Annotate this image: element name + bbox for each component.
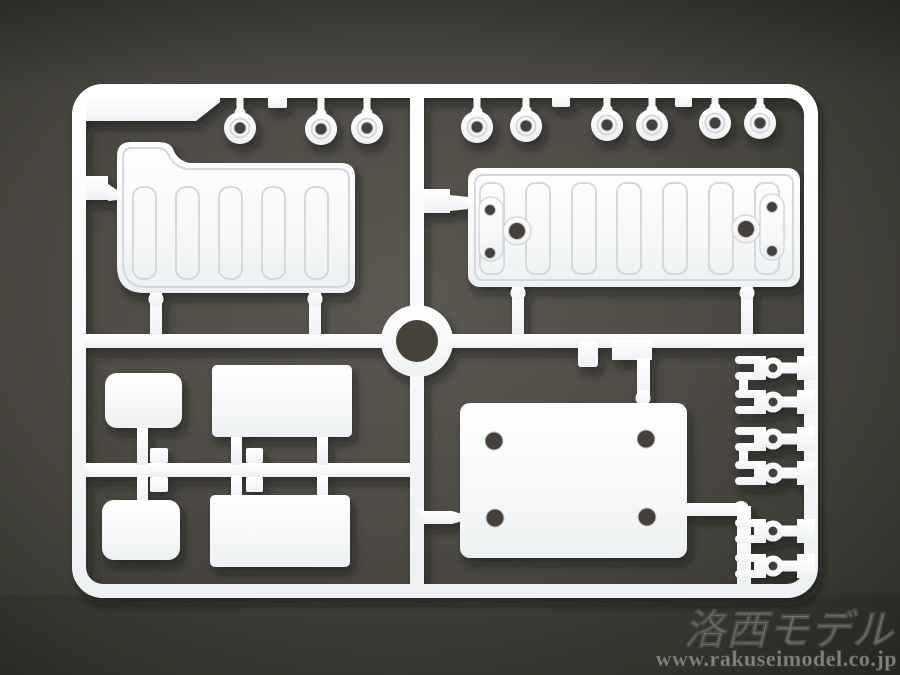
- sprue-photo: 洛西モデル www.rakuseimodel.co.jp: [0, 0, 900, 675]
- mount-plate-right-stub: [683, 503, 739, 516]
- part-rect-plate-bottom: [210, 495, 350, 567]
- cab-panel-body: [117, 142, 355, 293]
- left-rail-stub: [86, 176, 108, 200]
- runner-label-tab: [86, 96, 220, 121]
- chassis-arm: [424, 189, 450, 213]
- watermark-url: www.rakuseimodel.co.jp: [656, 646, 897, 671]
- watermark: 洛西モデル www.rakuseimodel.co.jp: [656, 606, 897, 671]
- background-top-shade: [0, 0, 900, 90]
- mount-plate-top-block: [612, 340, 652, 360]
- center-ring-hole: [396, 320, 438, 362]
- part-rounded-plate-top: [105, 373, 182, 428]
- mount-plate-body: [460, 403, 687, 558]
- part-rounded-plate-bottom: [102, 500, 180, 560]
- mount-plate-left-stub: [420, 511, 452, 524]
- runner-horizontal-lower-left: [84, 463, 410, 477]
- photo-stage: 洛西モデル www.rakuseimodel.co.jp: [0, 0, 900, 675]
- part-rect-plate-top: [212, 365, 352, 437]
- chassis-arm-gate: [450, 195, 468, 211]
